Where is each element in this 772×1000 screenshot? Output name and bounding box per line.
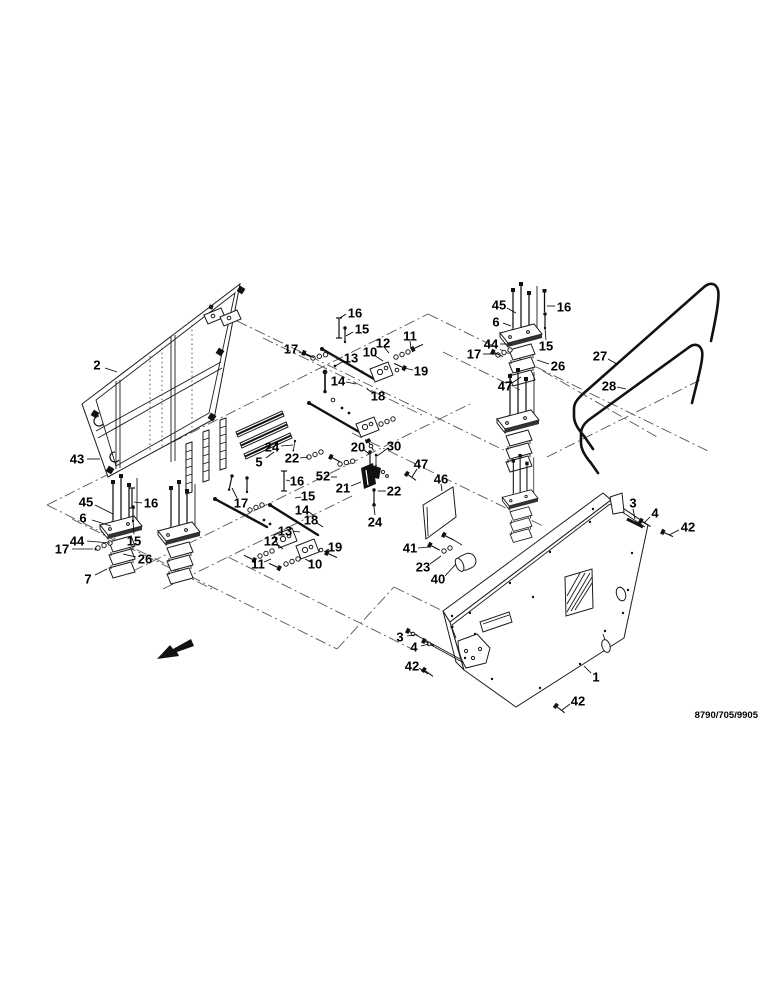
svg-text:19: 19 <box>414 364 428 379</box>
svg-text:42: 42 <box>681 520 695 535</box>
svg-text:11: 11 <box>251 557 265 572</box>
callout-11: 11 <box>403 329 417 350</box>
svg-text:12: 12 <box>376 336 390 351</box>
svg-text:27: 27 <box>593 349 607 364</box>
callout-42: 42 <box>562 694 585 711</box>
svg-text:42: 42 <box>405 659 419 674</box>
svg-text:17: 17 <box>234 496 248 511</box>
tubes-27-28 <box>574 284 718 473</box>
cylinder-part-40 <box>427 532 478 573</box>
callout-24: 24 <box>368 507 383 530</box>
callout-6: 6 <box>492 315 511 330</box>
direction-arrow <box>157 639 194 659</box>
callout-43: 43 <box>70 452 100 467</box>
svg-text:44: 44 <box>484 337 499 352</box>
callout-47: 47 <box>412 457 428 478</box>
svg-text:47: 47 <box>414 457 428 472</box>
hinge-assembly <box>100 474 142 578</box>
side-panel-part-1 <box>443 493 648 707</box>
svg-text:11: 11 <box>403 329 417 344</box>
svg-text:16: 16 <box>557 300 571 315</box>
callout-42: 42 <box>669 520 695 536</box>
svg-text:5: 5 <box>255 455 262 470</box>
callout-27: 27 <box>593 349 617 365</box>
svg-text:45: 45 <box>79 495 93 510</box>
svg-text:41: 41 <box>403 541 417 556</box>
diagram-page: 8790/705/9905 24345166441715267161517131… <box>0 0 772 1000</box>
callout-41: 41 <box>403 541 429 556</box>
svg-text:40: 40 <box>431 572 445 587</box>
svg-text:15: 15 <box>539 339 553 354</box>
callout-13: 13 <box>278 524 300 539</box>
svg-text:3: 3 <box>629 496 636 511</box>
callout-17: 17 <box>232 488 248 511</box>
svg-text:13: 13 <box>278 524 292 539</box>
svg-text:17: 17 <box>467 347 481 362</box>
panel-tab <box>610 493 624 514</box>
callout-21: 21 <box>336 481 361 496</box>
callout-5: 5 <box>255 452 274 470</box>
callout-2: 2 <box>93 358 117 373</box>
svg-text:16: 16 <box>348 306 362 321</box>
svg-text:43: 43 <box>70 452 84 467</box>
callout-16: 16 <box>547 300 571 315</box>
svg-text:52: 52 <box>316 469 330 484</box>
svg-text:6: 6 <box>492 315 499 330</box>
svg-text:28: 28 <box>602 379 616 394</box>
callout-16: 16 <box>134 496 158 511</box>
callout-52: 52 <box>316 469 337 484</box>
callout-18: 18 <box>304 513 323 528</box>
callout-22: 22 <box>378 484 401 499</box>
svg-text:30: 30 <box>387 439 401 454</box>
svg-text:22: 22 <box>285 451 299 466</box>
svg-text:6: 6 <box>79 511 86 526</box>
plate-part-46 <box>423 487 456 539</box>
callout-15: 15 <box>539 328 553 354</box>
exploded-parts-diagram: 8790/705/9905 24345166441715267161517131… <box>0 0 772 1000</box>
callout-11: 11 <box>251 557 271 572</box>
svg-text:15: 15 <box>127 534 141 549</box>
svg-text:4: 4 <box>410 640 418 655</box>
svg-text:47: 47 <box>498 379 512 394</box>
svg-text:23: 23 <box>416 560 430 575</box>
svg-text:42: 42 <box>571 694 585 709</box>
svg-text:20: 20 <box>351 440 365 455</box>
callout-18: 18 <box>367 389 385 404</box>
svg-text:21: 21 <box>336 481 350 496</box>
callout-28: 28 <box>602 379 626 394</box>
svg-text:10: 10 <box>363 345 377 360</box>
svg-text:24: 24 <box>368 515 383 530</box>
callout-26: 26 <box>537 359 565 374</box>
callout-15: 15 <box>295 489 315 504</box>
callout-22: 22 <box>285 451 308 466</box>
callout-14: 14 <box>331 374 356 389</box>
svg-text:13: 13 <box>344 351 358 366</box>
svg-text:45: 45 <box>492 298 506 313</box>
svg-text:10: 10 <box>308 557 322 572</box>
svg-text:17: 17 <box>284 342 298 357</box>
callout-16: 16 <box>340 306 362 321</box>
callout-10: 10 <box>305 557 322 572</box>
svg-text:7: 7 <box>84 572 91 587</box>
svg-text:3: 3 <box>396 630 403 645</box>
callout-46: 46 <box>434 472 448 492</box>
panel-hatch <box>565 569 593 616</box>
svg-text:12: 12 <box>264 534 278 549</box>
svg-text:18: 18 <box>371 389 385 404</box>
callout-4: 4 <box>644 506 659 524</box>
callout-12: 12 <box>376 336 390 354</box>
svg-text:16: 16 <box>144 496 158 511</box>
svg-text:14: 14 <box>331 374 346 389</box>
hinge-assembly <box>500 282 542 386</box>
callout-40: 40 <box>431 564 456 587</box>
svg-text:2: 2 <box>93 358 100 373</box>
svg-text:1: 1 <box>592 670 599 685</box>
svg-text:19: 19 <box>328 540 342 555</box>
hinge-assembly <box>158 480 200 584</box>
svg-text:24: 24 <box>265 440 280 455</box>
drawing-ref-code: 8790/705/9905 <box>695 710 759 721</box>
svg-text:15: 15 <box>355 322 369 337</box>
svg-text:44: 44 <box>70 534 85 549</box>
callout-30: 30 <box>377 439 401 457</box>
svg-text:16: 16 <box>290 474 304 489</box>
svg-text:4: 4 <box>651 506 659 521</box>
svg-text:15: 15 <box>301 489 315 504</box>
svg-text:26: 26 <box>551 359 565 374</box>
svg-text:18: 18 <box>304 513 318 528</box>
svg-text:17: 17 <box>55 542 69 557</box>
callout-7: 7 <box>84 569 107 587</box>
svg-text:26: 26 <box>138 552 152 567</box>
callout-16: 16 <box>286 474 304 489</box>
callout-1: 1 <box>584 666 600 685</box>
callout-15: 15 <box>346 322 369 337</box>
callout-42: 42 <box>405 659 428 675</box>
svg-text:22: 22 <box>387 484 401 499</box>
svg-text:46: 46 <box>434 472 448 487</box>
callout-19: 19 <box>404 364 428 379</box>
